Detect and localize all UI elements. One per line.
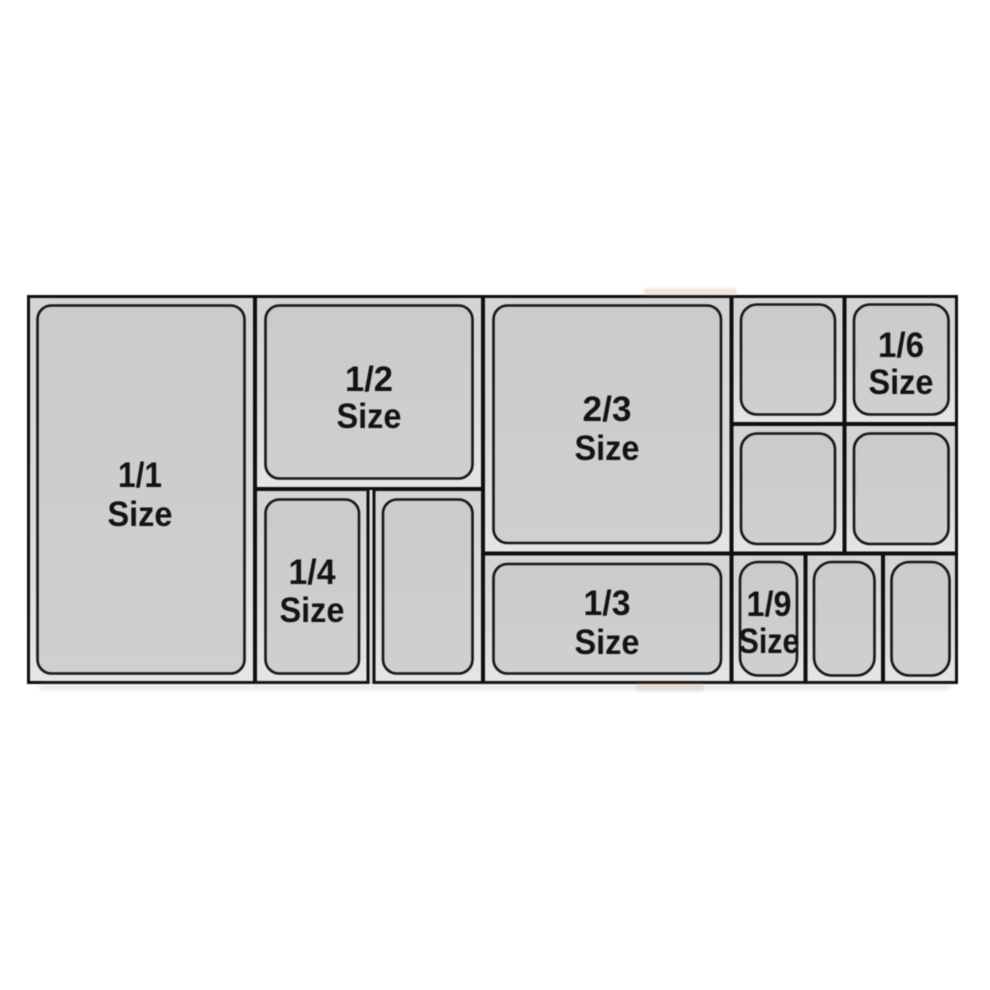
svg-text:Size: Size bbox=[108, 494, 173, 534]
svg-text:Size: Size bbox=[869, 362, 934, 402]
svg-text:Size: Size bbox=[280, 590, 345, 630]
svg-text:1/6: 1/6 bbox=[878, 325, 924, 365]
svg-text:Size: Size bbox=[739, 621, 800, 661]
svg-text:1/9: 1/9 bbox=[747, 584, 792, 624]
svg-text:1/1: 1/1 bbox=[118, 455, 162, 495]
svg-text:2/3: 2/3 bbox=[583, 389, 632, 429]
svg-text:1/3: 1/3 bbox=[584, 583, 631, 623]
svg-text:Size: Size bbox=[575, 428, 640, 468]
svg-text:Size: Size bbox=[337, 396, 402, 436]
svg-text:Size: Size bbox=[575, 622, 640, 662]
svg-text:1/2: 1/2 bbox=[345, 359, 393, 399]
svg-text:1/4: 1/4 bbox=[289, 552, 336, 592]
